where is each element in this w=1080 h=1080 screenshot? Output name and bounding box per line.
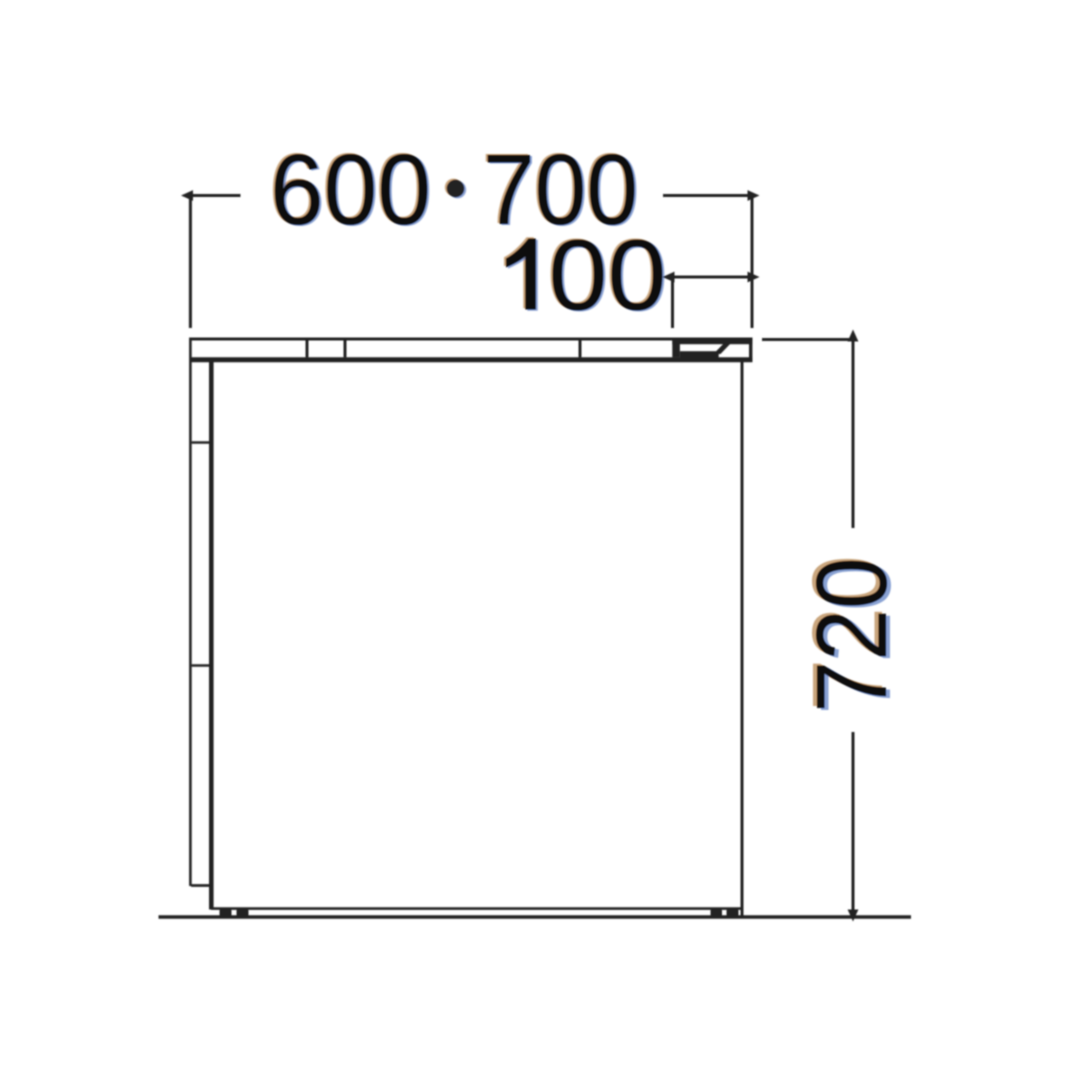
svg-text:600: 600 bbox=[270, 134, 431, 246]
svg-text:720: 720 bbox=[796, 557, 908, 713]
svg-text:00: 00 bbox=[549, 220, 667, 332]
